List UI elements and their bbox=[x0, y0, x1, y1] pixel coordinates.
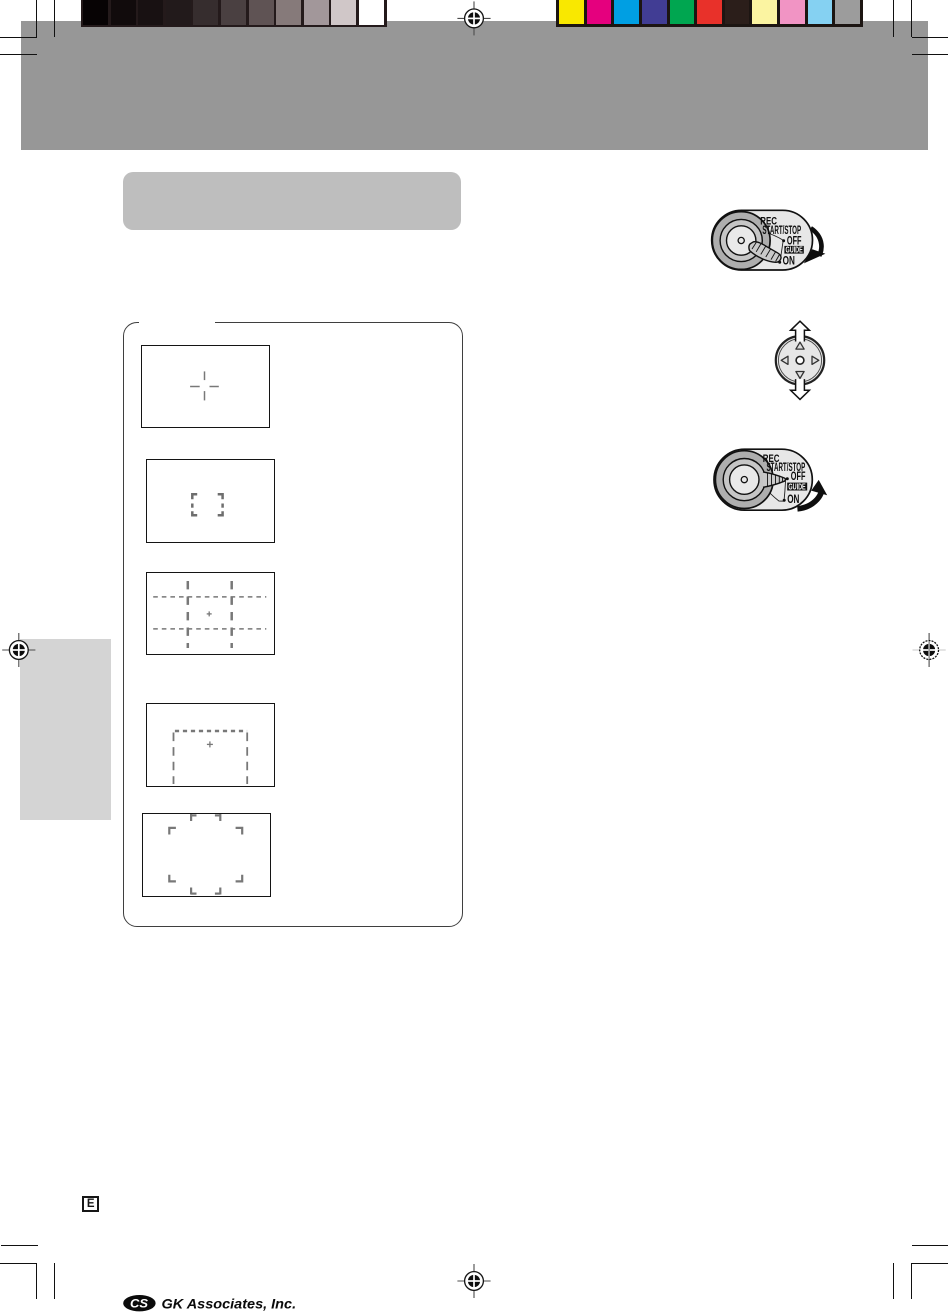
svg-text:ON: ON bbox=[787, 493, 799, 506]
svg-text:GK Associates, Inc.: GK Associates, Inc. bbox=[162, 1296, 297, 1311]
svg-text:GUIDE: GUIDE bbox=[788, 484, 806, 492]
svg-text:OFF: OFF bbox=[791, 470, 806, 483]
svg-text:GUIDE: GUIDE bbox=[786, 247, 804, 255]
svg-text:CS: CS bbox=[130, 1297, 148, 1311]
svg-text:ON: ON bbox=[783, 255, 795, 268]
